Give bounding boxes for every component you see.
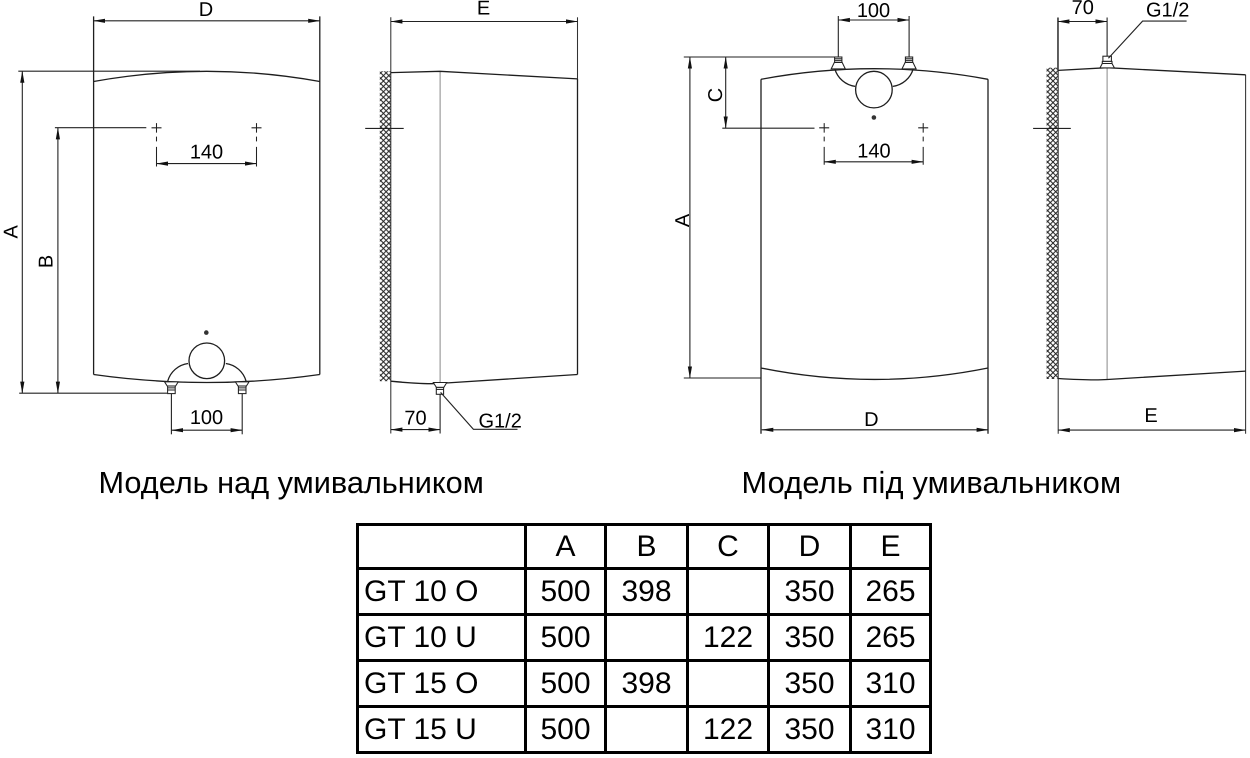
svg-text:70: 70 xyxy=(1072,0,1094,19)
svg-text:A: A xyxy=(672,213,694,227)
svg-text:100: 100 xyxy=(857,0,890,22)
svg-text:E: E xyxy=(477,0,490,19)
svg-text:D: D xyxy=(864,409,878,431)
svg-text:D: D xyxy=(199,0,213,21)
svg-text:C: C xyxy=(705,88,727,102)
svg-text:140: 140 xyxy=(857,141,890,163)
svg-text:100: 100 xyxy=(190,407,223,429)
svg-text:G1/2: G1/2 xyxy=(479,411,522,433)
svg-text:140: 140 xyxy=(190,141,223,163)
svg-text:A: A xyxy=(1,224,23,238)
svg-text:G1/2: G1/2 xyxy=(1146,0,1189,22)
svg-text:E: E xyxy=(1144,405,1157,427)
svg-text:70: 70 xyxy=(404,408,426,430)
svg-text:B: B xyxy=(35,255,57,268)
